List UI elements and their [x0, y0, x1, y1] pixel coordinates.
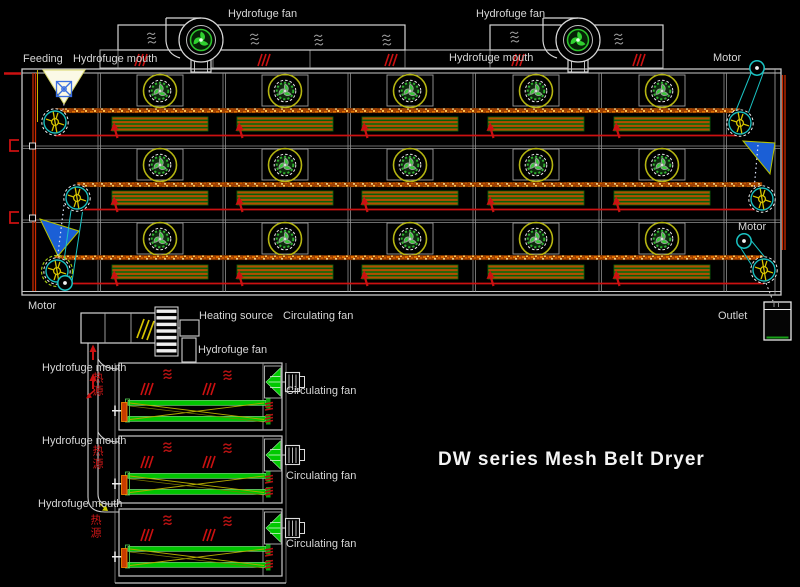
mesh-belt-3 [55, 255, 764, 260]
hydrofuge-duct-left [118, 25, 405, 50]
motor-icon [737, 234, 751, 248]
dryer-body [22, 69, 785, 295]
pulley-icon [749, 186, 775, 212]
heating-source-label: Heating source [199, 310, 273, 322]
heating-source-stack [155, 307, 178, 356]
feeding-label: Feeding [23, 53, 63, 65]
mesh-belt-2 [77, 182, 762, 187]
circulating-fan-label: Circulating fan [286, 470, 356, 482]
hydrofuge-fan-icon [543, 18, 600, 72]
circulating-fan-label: Circulating fan [286, 385, 356, 397]
motor-label: Motor [28, 300, 56, 312]
dryer-diagram-canvas: Feeding Hydrofuge mouth Hydrofuge fan Hy… [0, 0, 800, 587]
dryer-level [112, 363, 305, 430]
heat-source-cn-label: 热源 [91, 372, 102, 398]
pulley-icon [64, 185, 90, 211]
pulley-icon [751, 257, 777, 283]
hydrofuge-mouth-label: Hydrofuge mouth [42, 435, 126, 447]
transfer-chute-left [40, 205, 79, 262]
hydrofuge-mouth-label: Hydrofuge mouth [42, 362, 126, 374]
section-marks [4, 74, 36, 224]
steam-icon [613, 33, 624, 46]
hydrofuge-fan-icon [166, 18, 223, 72]
up-arrow-icon [90, 345, 97, 361]
heat-hatch-icon [633, 54, 645, 66]
steam-icon [249, 33, 260, 46]
hydrofuge-mouth-label: Hydrofuge mouth [449, 52, 533, 64]
motor-icon [58, 276, 72, 290]
heat-source-cn-label: 热源 [91, 445, 102, 471]
outlet-label: Outlet [718, 310, 747, 322]
diagram-title: DW series Mesh Belt Dryer [438, 449, 705, 471]
dryer-level [112, 509, 305, 576]
steam-icon [313, 34, 324, 47]
dryer-level [112, 436, 305, 503]
motor-label: Motor [713, 52, 741, 64]
circulation-fan-row [137, 75, 685, 108]
motor-icon [750, 61, 764, 75]
pulley-icon [42, 109, 68, 135]
hydrofuge-fan-label: Hydrofuge fan [228, 8, 297, 20]
hydrofuge-fan-label: Hydrofuge fan [198, 344, 267, 356]
exhaust-duct-box [81, 313, 156, 343]
mesh-belt-1 [55, 108, 740, 113]
heat-hatch-icon [385, 54, 397, 66]
steam-icon [381, 34, 392, 47]
motor-label: Motor [738, 221, 766, 233]
hydrofuge-mouth-label: Hydrofuge mouth [38, 498, 122, 510]
circulation-fan-row [137, 223, 685, 256]
steam-icon [146, 32, 157, 45]
circulating-fan-label: Circulating fan [283, 310, 353, 322]
top-view [4, 18, 791, 340]
hydrofuge-fan-box [178, 320, 199, 362]
pulley-icon [727, 110, 753, 136]
heat-source-cn-label: 热源 [89, 514, 100, 540]
circulation-fan-row [137, 149, 685, 182]
hydrofuge-mouth-label: Hydrofuge mouth [73, 53, 157, 65]
hydrofuge-fan-label: Hydrofuge fan [476, 8, 545, 20]
heat-hatch-icon [258, 54, 270, 66]
steam-icon [509, 31, 520, 44]
circulating-fan-label: Circulating fan [286, 538, 356, 550]
